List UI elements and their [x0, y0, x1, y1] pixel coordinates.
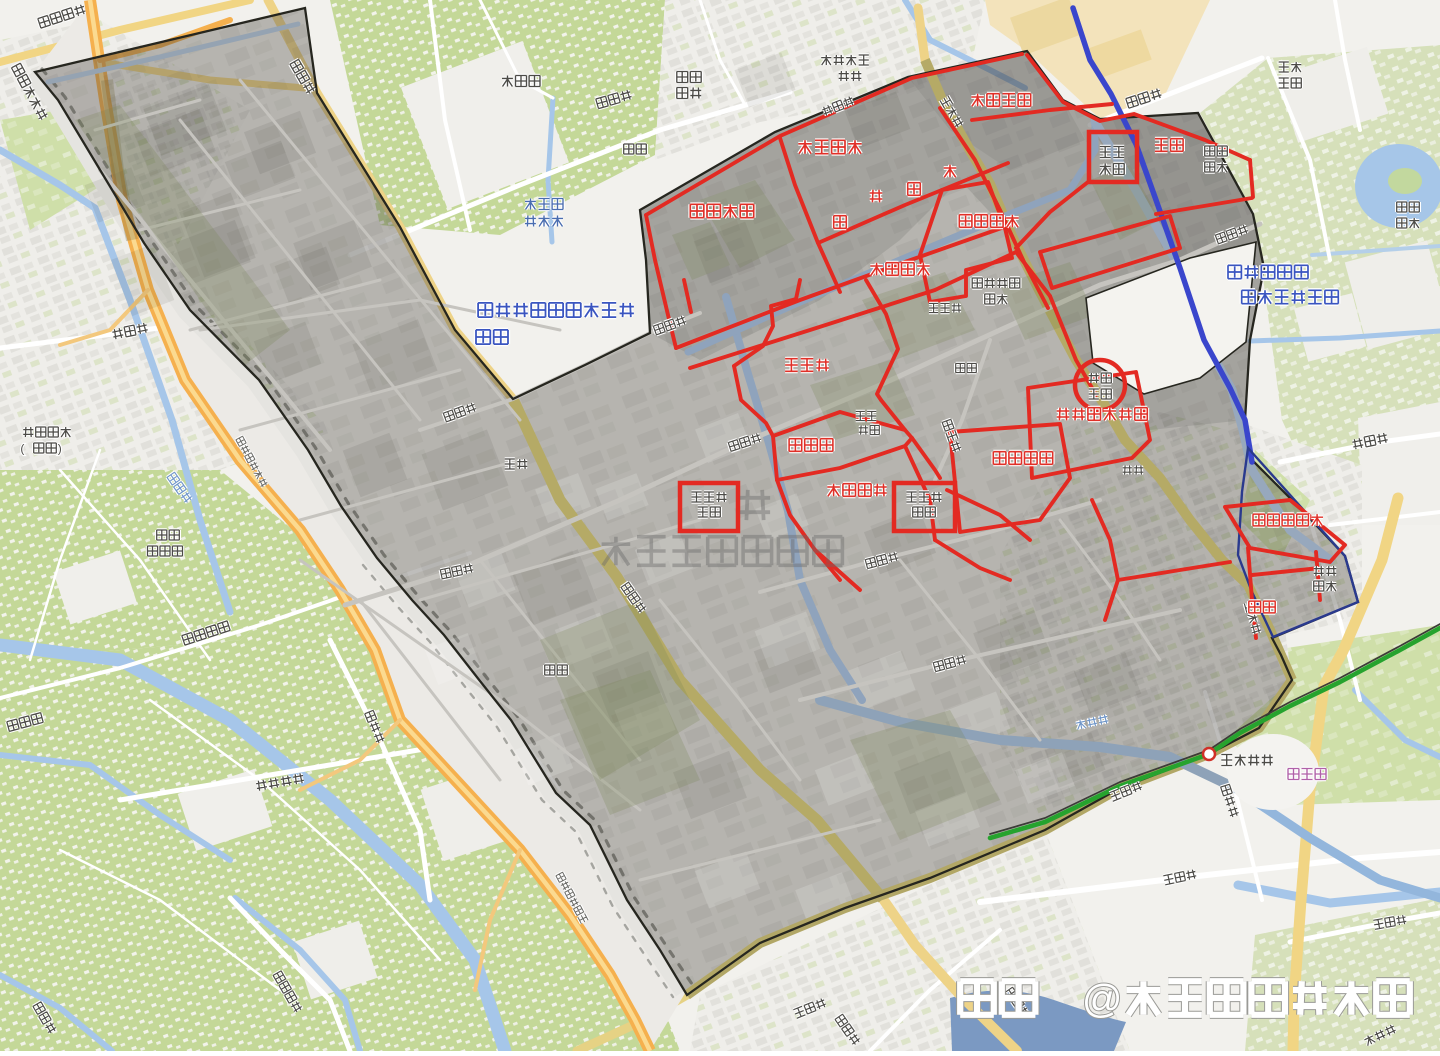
- svg-text:@: @: [1082, 977, 1123, 1021]
- svg-text:(: (: [20, 441, 24, 455]
- svg-text:): ): [58, 441, 62, 455]
